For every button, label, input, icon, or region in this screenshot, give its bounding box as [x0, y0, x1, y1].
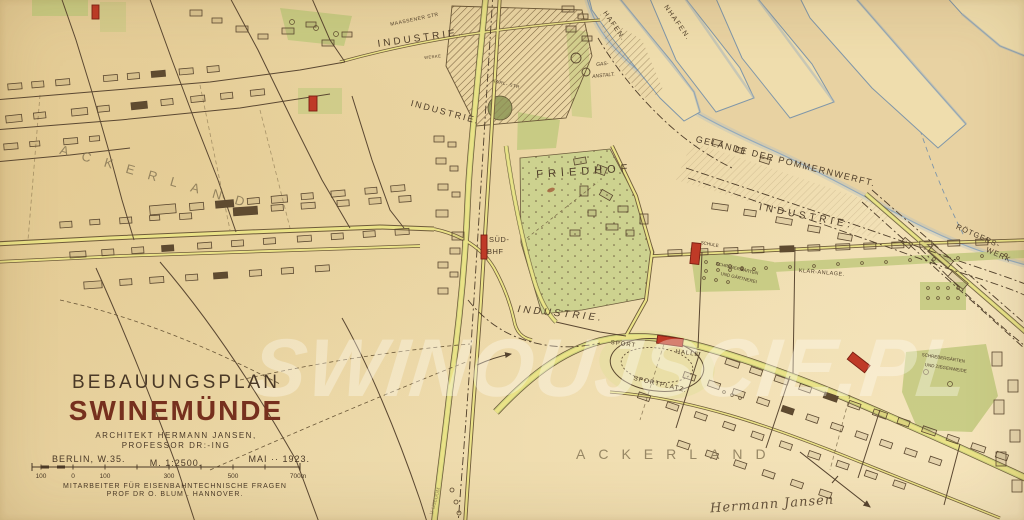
- label-schule: SCHULE: [700, 241, 719, 249]
- scale-bar-tick-label: 100: [100, 473, 111, 480]
- label-roetgers: RÖTGERS-: [955, 223, 1002, 249]
- plan-type-title: BEBAUUNGSPLAN: [40, 372, 312, 394]
- scale-bar-tick-label: 100: [36, 473, 47, 480]
- scale-bar-labels: 1000100300500700m: [28, 473, 308, 482]
- area-label-pommernwerft: GELÄNDE DER POMMERNWERFT.: [695, 135, 877, 188]
- scale-bar-tick-label: 500: [228, 473, 239, 480]
- collaborator-note: MITARBEITER FÜR EISENBAHNTECHNISCHE FRAG…: [30, 483, 320, 498]
- street-label-maassener-str: MAASSENER STR: [390, 13, 439, 28]
- label-und-ziegenweide: UND ZIEGENWEIDE: [924, 363, 967, 374]
- architect-title-line: PROFESSOR DR:-ING: [40, 441, 312, 450]
- scale-bar: [28, 462, 308, 472]
- harbor-label-nhafen: NHAFEN.: [662, 4, 691, 42]
- area-label-industrie-north: INDUSTRIE.: [377, 28, 464, 50]
- label-klaeranlage: KLÄR-ANLAGE.: [799, 269, 845, 278]
- scale-bar-tick-label: 0: [71, 473, 75, 480]
- street-label-karl-str: KARL- STR: [492, 79, 520, 90]
- label-gas: GAS-: [596, 62, 609, 68]
- architect-line: ARCHITEKT HERMANN JANSEN,: [40, 431, 312, 440]
- area-label-industrie-upper: INDUSTRIE.: [410, 99, 481, 126]
- road-label-usedom: V. USEDOM: [430, 487, 442, 515]
- label-werke: WERKE: [424, 54, 441, 60]
- label-anstalt: ANSTALT.: [592, 73, 615, 80]
- label-sportplatz: SPORTPLATZ.: [633, 376, 688, 395]
- area-label-industrie-east: INDUSTRIE.: [758, 203, 855, 231]
- area-label-industrie-center: INDUSTRIE.: [517, 305, 604, 324]
- area-label-friedhof: FRIEDHOF: [536, 163, 633, 181]
- region-label-ackerland-west: ACKERLAND: [58, 143, 259, 212]
- scale-bar-tick-label: 700m: [290, 473, 306, 480]
- collaborator-line1: MITARBEITER FÜR EISENBAHNTECHNISCHE FRAG…: [30, 483, 320, 490]
- scale-bar-tick-label: 300: [164, 473, 175, 480]
- label-halle: HALLE: [675, 349, 700, 358]
- title-block: BEBAUUNGSPLAN SWINEMÜNDE ARCHITEKT HERMA…: [40, 372, 312, 467]
- region-label-ackerland-south: ACKERLAND: [576, 447, 779, 461]
- station-label-bhf: BHF: [487, 248, 504, 256]
- label-werk: WERK: [985, 246, 1012, 264]
- label-sport: SPORT: [610, 340, 636, 349]
- harbor-label-hafen: HAFEN.: [601, 10, 627, 42]
- station-label-sued: SÜD-: [489, 236, 509, 244]
- city-title: SWINEMÜNDE: [40, 395, 312, 427]
- collaborator-line2: PROF DR O. BLUM . HANNOVER.: [30, 491, 320, 498]
- map-canvas: SWINOUJSCIE.PL ACKERLANDMAASSENER STRIND…: [0, 0, 1024, 520]
